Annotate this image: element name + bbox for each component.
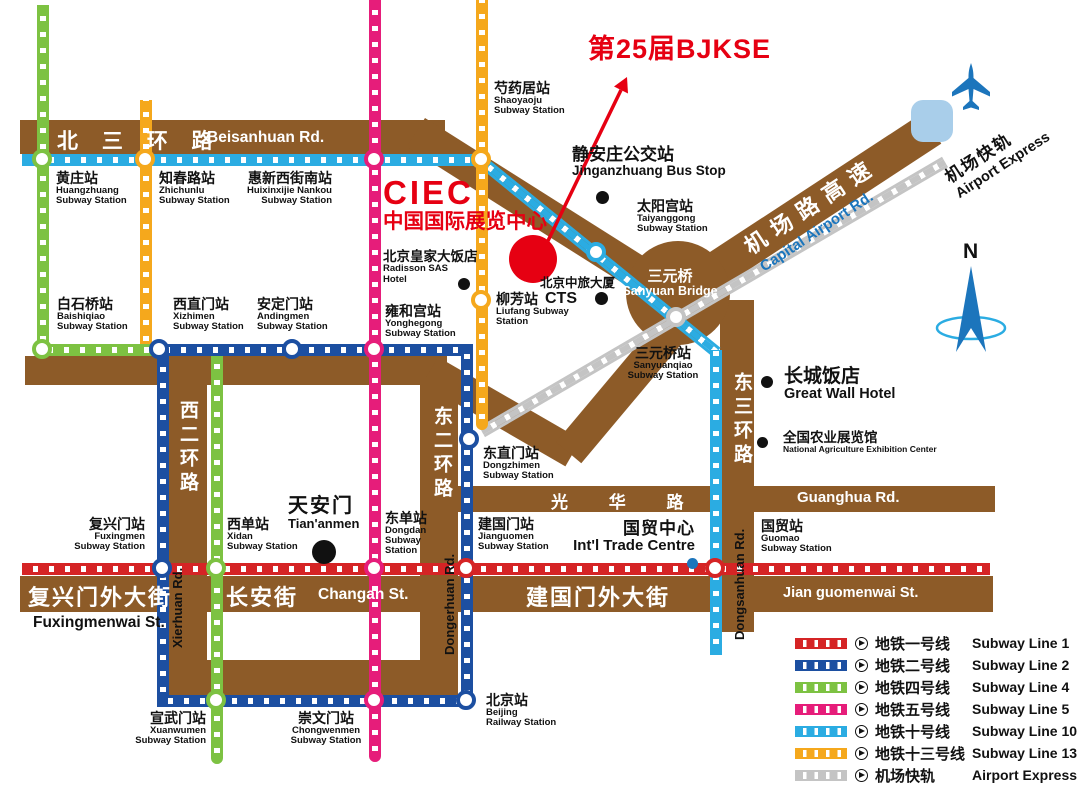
sanyuan-bridge-en: Sanyuan Bridge xyxy=(614,285,726,298)
station-circle-xuanwumen[interactable] xyxy=(206,690,226,710)
station-label-jianguomen: 建国门站 Jianguomen Subway Station xyxy=(478,517,549,552)
poi-label-intl-trade: 国贸中心 Int'l Trade Centre xyxy=(573,520,695,554)
line2-north xyxy=(154,344,470,356)
station-label-beijing-railway: 北京站 Beijing Railway Station xyxy=(486,693,556,728)
road-label-beisanhuan-zh: 北 三 环 路 xyxy=(57,125,222,155)
station-label-andingmen: 安定门站 Andingmen Subway Station xyxy=(257,297,328,332)
station-circle-huixinxijie[interactable] xyxy=(364,149,384,169)
legend-row-line4: 地铁四号线 Subway Line 4 xyxy=(795,676,1077,698)
line13-swatch-icon xyxy=(795,748,847,759)
airplane-icon xyxy=(949,62,993,112)
road-label-dongsanhuan-zh: 东三环路 xyxy=(728,372,755,468)
station-label-taiyanggong: 太阳宫站 Taiyanggong Subway Station xyxy=(637,199,708,234)
line2-east xyxy=(461,344,473,706)
line2-west xyxy=(157,350,169,703)
sanyuan-bridge-label: 三元桥 Sanyuan Bridge xyxy=(614,269,726,298)
station-label-huixinxijie: 惠新西街南站 Huixinxijie Nankou Subway Station xyxy=(247,171,332,206)
station-circle-liufang[interactable] xyxy=(471,290,491,310)
airport-express-swatch-icon xyxy=(795,770,847,781)
station-circle-fuxingmen[interactable] xyxy=(152,558,172,578)
station-label-sanyuanqiao: 三元桥站 Sanyuanqiao Subway Station xyxy=(611,346,715,381)
station-circle-dongdan[interactable] xyxy=(364,558,384,578)
station-circle-beijing-railway[interactable] xyxy=(456,690,476,710)
road-label-xierhuan-en: Xierhuan Rd. xyxy=(170,568,185,648)
road-label-changan-en: Changan St. xyxy=(318,586,408,604)
station-circle-shaoyaoju[interactable] xyxy=(471,149,491,169)
line2-south xyxy=(157,695,470,707)
play-circle-icon xyxy=(855,725,868,738)
station-label-chongwenmen: 崇文门站 Chongwenmen Subway Station xyxy=(276,711,376,746)
road-label-changan-zh: 长安街 xyxy=(226,580,298,612)
play-circle-icon xyxy=(855,769,868,782)
beijing-exhibition-access-map: CIEC 中国国际展览中心 第25届BJKSE N 北 三 环 路 Beisan… xyxy=(0,0,1080,790)
station-label-zhichunlu: 知春路站 Zhichunlu Subway Station xyxy=(159,171,230,206)
poi-label-cts: 北京中旅大厦 CTS xyxy=(540,277,615,307)
line5-vertical xyxy=(369,0,381,762)
road-label-fuxingmenwai-en: Fuxingmenwai St. xyxy=(33,614,165,632)
road-label-guanghua-zh: 光 华 路 xyxy=(551,488,701,513)
road-label-guanghua-en: Guanghua Rd. xyxy=(797,489,900,506)
road-label-dongerhuan-zh: 东二环路 xyxy=(428,406,455,502)
station-label-dongzhimen: 东直门站 Dongzhimen Subway Station xyxy=(483,446,554,481)
road-label-fuxingmenwai-zh: 复兴门外大街 xyxy=(28,580,172,612)
sanyuan-bridge-zh: 三元桥 xyxy=(614,269,726,285)
road-label-dongsanhuan-en: Dongsanhuan Rd. xyxy=(732,529,747,640)
play-circle-icon xyxy=(855,681,868,694)
poi-label-agri-center: 全国农业展览馆 National Agriculture Exhibition … xyxy=(783,431,937,455)
line10-horizontal xyxy=(22,154,482,166)
legend-row-line1: 地铁一号线 Subway Line 1 xyxy=(795,632,1077,654)
road-guanghua xyxy=(456,486,995,512)
road-label-dongerhuan-en: Dongerhuan Rd. xyxy=(442,554,457,655)
poi-label-tiananmen: 天安门 Tian'anmen xyxy=(288,496,359,531)
station-circle-yonghegong[interactable] xyxy=(364,339,384,359)
legend: 地铁一号线 Subway Line 1 地铁二号线 Subway Line 2 … xyxy=(795,632,1077,786)
station-circle-jianguomen[interactable] xyxy=(456,558,476,578)
station-label-fuxingmen: 复兴门站 Fuxingmen Subway Station xyxy=(74,517,145,552)
poi-label-jinganzhuang: 静安庄公交站 Jinganzhuang Bus Stop xyxy=(572,146,726,179)
road-inner-horizontal xyxy=(25,356,447,385)
line10-vertical xyxy=(710,350,722,655)
road-label-jianguomenwai-en: Jian guomenwai St. xyxy=(783,585,918,601)
legend-row-airport-express: 机场快轨 Airport Express xyxy=(795,764,1077,786)
station-label-huangzhuang: 黄庄站 Huangzhuang Subway Station xyxy=(56,171,127,206)
line10-swatch-icon xyxy=(795,726,847,737)
line2-swatch-icon xyxy=(795,660,847,671)
play-circle-icon xyxy=(855,703,868,716)
station-label-dongdan: 东单站 Dongdan Subway Station xyxy=(385,511,427,556)
station-circle-andingmen[interactable] xyxy=(282,339,302,359)
road-label-beisanhuan-en: Beisanhuan Rd. xyxy=(207,129,324,147)
station-circle-huangzhuang[interactable] xyxy=(32,149,52,169)
station-label-baishiqiao: 白石桥站 Baishiqiao Subway Station xyxy=(57,297,128,332)
road-label-xierhuan-zh: 西二环路 xyxy=(174,400,201,496)
station-label-guomao: 国贸站 Guomao Subway Station xyxy=(761,519,832,554)
agri-center-dot xyxy=(757,437,768,448)
great-wall-dot xyxy=(761,376,773,388)
station-label-yonghegong: 雍和宫站 Yonghegong Subway Station xyxy=(385,304,456,339)
airport-terminal-icon xyxy=(911,100,953,142)
compass-icon xyxy=(933,258,1009,358)
tiananmen-dot xyxy=(312,540,336,564)
road-label-jianguomenwai-zh: 建国门外大街 xyxy=(526,580,670,612)
poi-label-radisson: 北京皇家大饭店 Radisson SAS Hotel xyxy=(383,250,478,285)
station-circle-xidan[interactable] xyxy=(206,558,226,578)
station-label-shaoyaoju: 芍药居站 Shaoyaoju Subway Station xyxy=(494,81,565,116)
line1-swatch-icon xyxy=(795,638,847,649)
poi-label-great-wall: 长城饭店 Great Wall Hotel xyxy=(784,367,895,403)
line4-swatch-icon xyxy=(795,682,847,693)
station-circle-chongwenmen[interactable] xyxy=(364,690,384,710)
station-label-xuanwumen: 宣武门站 Xuanwumen Subway Station xyxy=(135,711,206,746)
play-circle-icon xyxy=(855,659,868,672)
play-circle-icon xyxy=(855,747,868,760)
airport-express-label: 机场快轨 Airport Express xyxy=(941,111,1054,203)
play-circle-icon xyxy=(855,637,868,650)
station-circle-baishiqiao[interactable] xyxy=(32,339,52,359)
line4-north-vertical xyxy=(37,5,49,352)
legend-row-line10: 地铁十号线 Subway Line 10 xyxy=(795,720,1077,742)
legend-row-line5: 地铁五号线 Subway Line 5 xyxy=(795,698,1077,720)
station-circle-dongzhimen[interactable] xyxy=(459,429,479,449)
legend-row-line13: 地铁十三号线 Subway Line 13 xyxy=(795,742,1077,764)
intl-trade-dot xyxy=(687,558,698,569)
station-label-xizhimen: 西直门站 Xizhimen Subway Station xyxy=(173,297,244,332)
station-circle-sanyuanqiao[interactable] xyxy=(666,307,686,327)
line5-swatch-icon xyxy=(795,704,847,715)
station-circle-guomao[interactable] xyxy=(705,558,725,578)
legend-row-line2: 地铁二号线 Subway Line 2 xyxy=(795,654,1077,676)
station-circle-xizhimen[interactable] xyxy=(149,339,169,359)
